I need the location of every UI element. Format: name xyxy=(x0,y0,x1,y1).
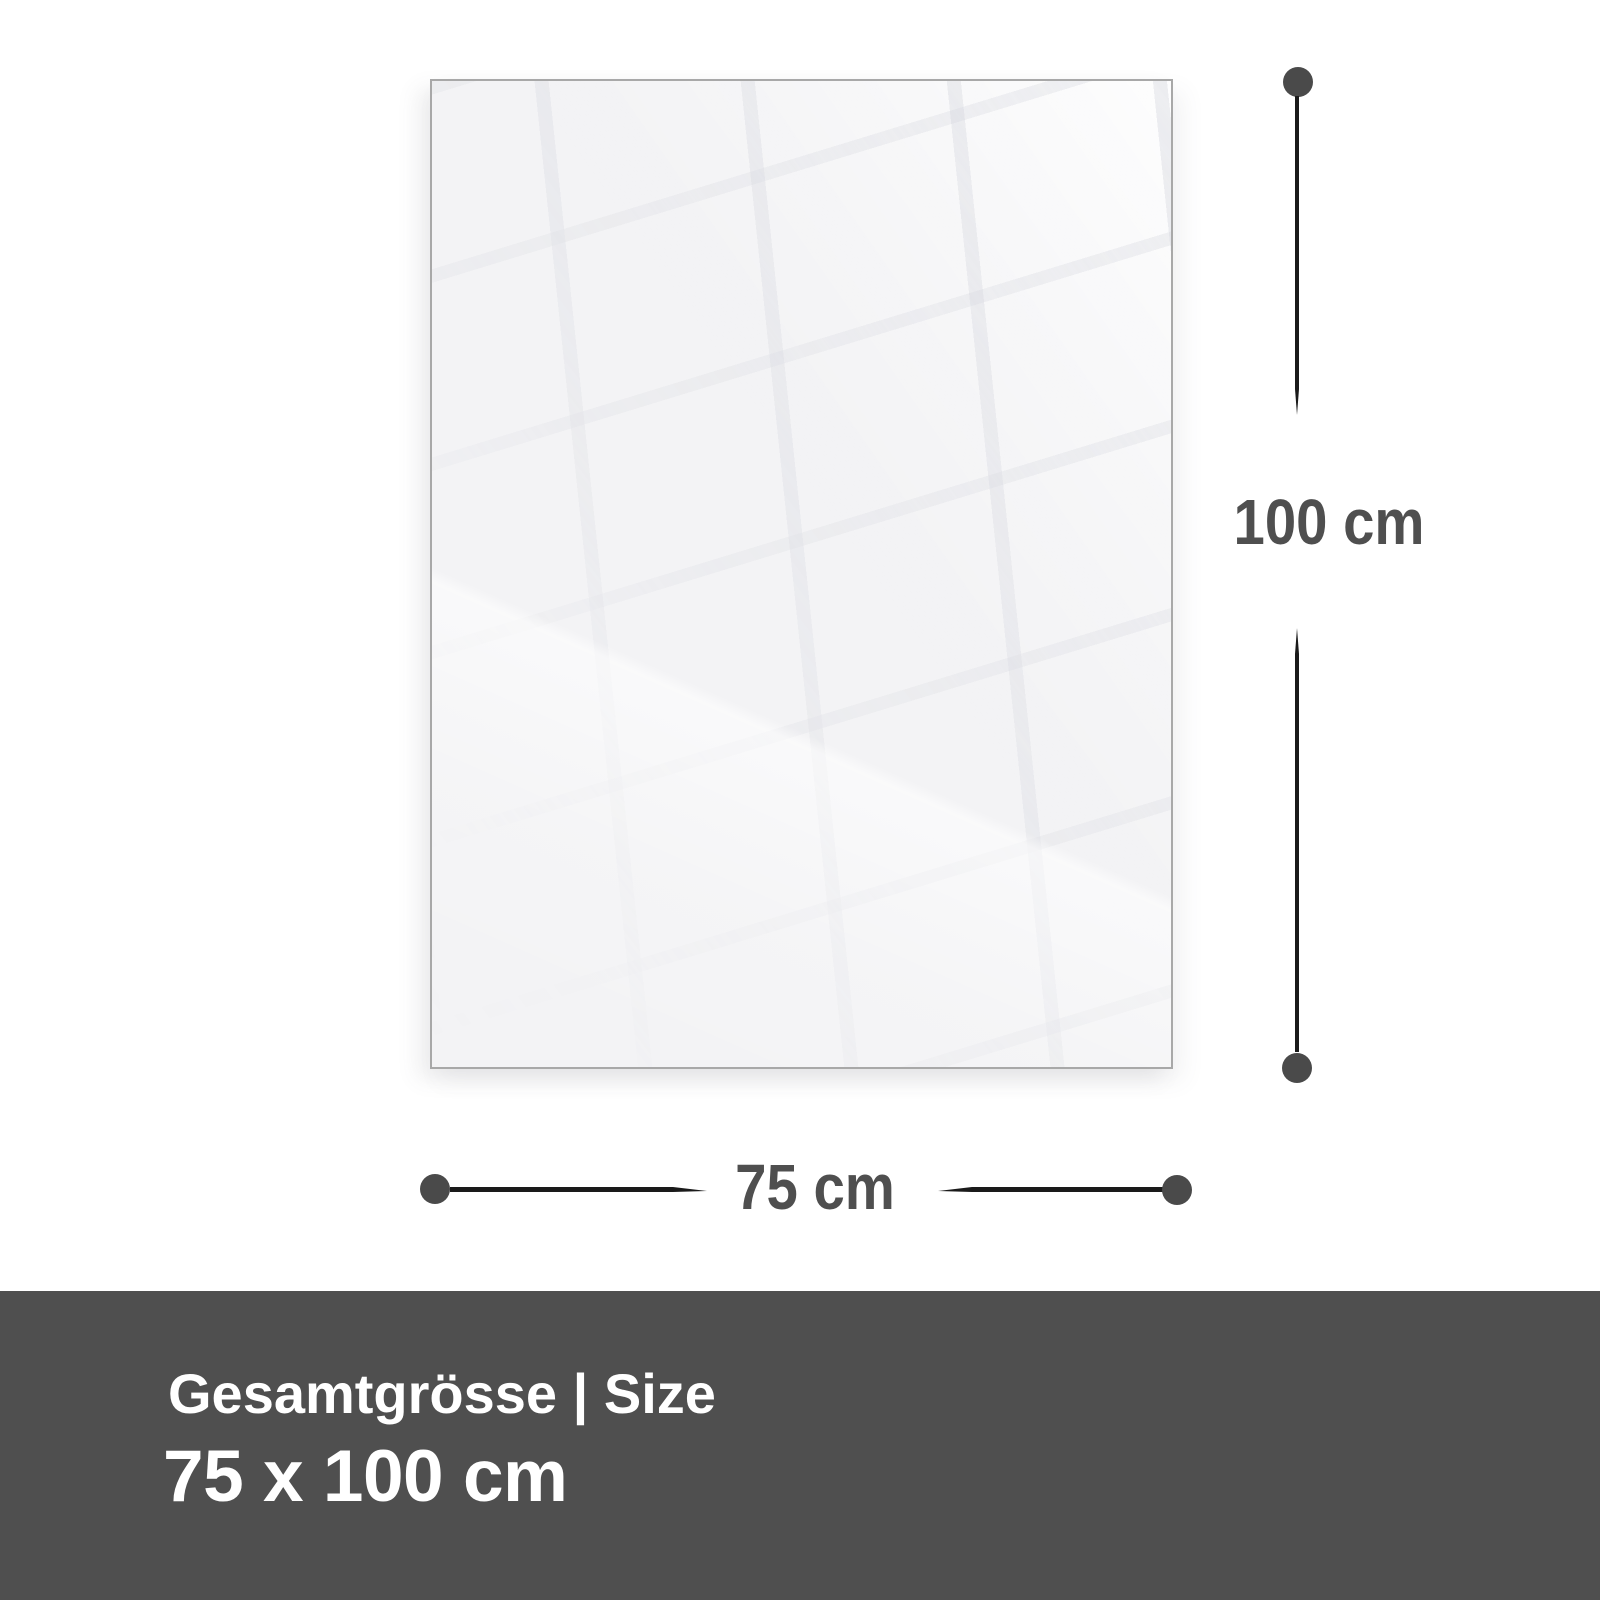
glass-sheen xyxy=(432,81,1171,1067)
height-dimension-line-upper xyxy=(1295,96,1299,415)
footer-size-value: 75 x 100 cm xyxy=(163,1440,567,1513)
footer-size-bar: Gesamtgrösse | Size 75 x 100 cm xyxy=(0,1291,1600,1600)
height-dimension-bottom-dot xyxy=(1282,1053,1312,1083)
size-infographic: 100 cm 75 cm Gesamtgrösse | Size 75 x 10… xyxy=(0,0,1600,1600)
height-dimension-label: 100 cm xyxy=(1233,490,1424,554)
width-dimension-right-dot xyxy=(1162,1175,1192,1205)
height-dimension-line-lower xyxy=(1295,628,1299,1052)
height-dimension-top-dot xyxy=(1283,67,1313,97)
width-dimension-left-dot xyxy=(420,1174,450,1204)
product-panel-preview xyxy=(430,79,1173,1069)
width-dimension-line-left xyxy=(450,1187,707,1192)
width-dimension-label: 75 cm xyxy=(735,1155,895,1219)
footer-size-heading: Gesamtgrösse | Size xyxy=(168,1366,716,1422)
width-dimension-line-right xyxy=(938,1187,1163,1192)
